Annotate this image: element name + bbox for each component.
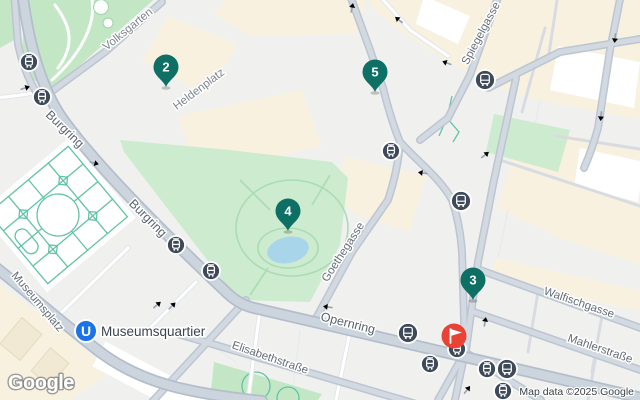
bus-stop-icon[interactable] [451,191,471,211]
tram-stop-icon[interactable] [202,262,220,280]
map-canvas[interactable]: Volksgarten Heldenplatz Burgring Burgrin… [0,0,640,400]
bus-stop-icon[interactable] [497,359,517,379]
station-label[interactable]: Museumsquartier [101,324,206,339]
vienna-map[interactable]: Volksgarten Heldenplatz Burgring Burgrin… [0,0,640,400]
flag-marker-circle [442,324,467,349]
tram-stop-icon[interactable] [494,382,512,400]
subway-station-museumsquartier[interactable]: U [75,320,97,342]
bus-stop-icon[interactable] [475,70,495,90]
bus-stop-icon[interactable] [398,323,418,343]
ubahn-icon-letter: U [81,323,91,339]
tram-stop-icon[interactable] [478,360,496,378]
tram-stop-icon[interactable] [167,236,185,254]
svg-text:2: 2 [162,60,169,75]
svg-text:4: 4 [284,204,292,219]
google-logo[interactable]: Google [8,372,74,394]
svg-text:3: 3 [469,273,476,288]
map-attribution[interactable]: Map data ©2025 Google [519,386,634,398]
svg-text:5: 5 [371,65,378,80]
destination-flag-marker[interactable] [442,324,467,349]
tram-stop-icon[interactable] [382,142,400,160]
tram-stop-icon[interactable] [421,355,439,373]
tram-stop-icon[interactable] [33,88,51,106]
tram-stop-icon[interactable] [20,53,38,71]
